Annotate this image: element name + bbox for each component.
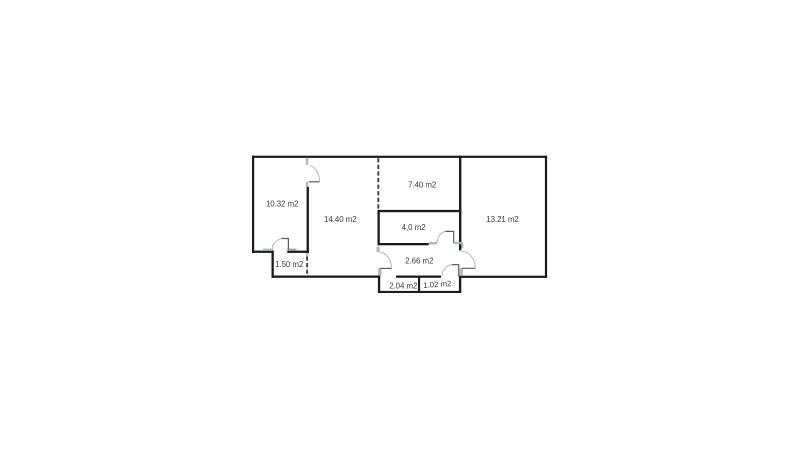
svg-text:7.40 m2: 7.40 m2 bbox=[408, 180, 436, 189]
svg-text:1.02 m2: 1.02 m2 bbox=[423, 279, 452, 290]
svg-text:2.66 m2: 2.66 m2 bbox=[405, 257, 433, 266]
svg-text:13.21 m2: 13.21 m2 bbox=[486, 215, 519, 224]
svg-text:14.40 m2: 14.40 m2 bbox=[324, 215, 357, 224]
svg-text:1.50 m2: 1.50 m2 bbox=[275, 260, 303, 269]
svg-text:2.04 m2: 2.04 m2 bbox=[389, 282, 417, 291]
svg-text:4,0 m2: 4,0 m2 bbox=[402, 223, 426, 232]
svg-text:10.32 m2: 10.32 m2 bbox=[266, 199, 299, 208]
